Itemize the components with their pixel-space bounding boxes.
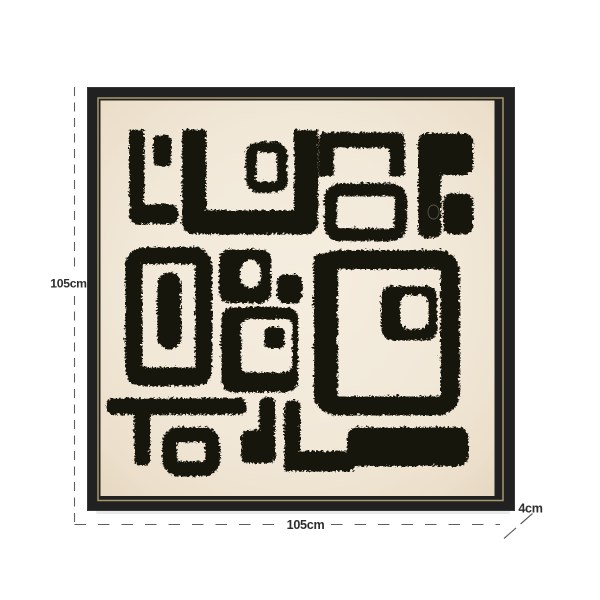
svg-text:105cm: 105cm bbox=[287, 518, 325, 532]
svg-text:4cm: 4cm bbox=[518, 502, 542, 516]
svg-text:105cm: 105cm bbox=[50, 277, 87, 291]
